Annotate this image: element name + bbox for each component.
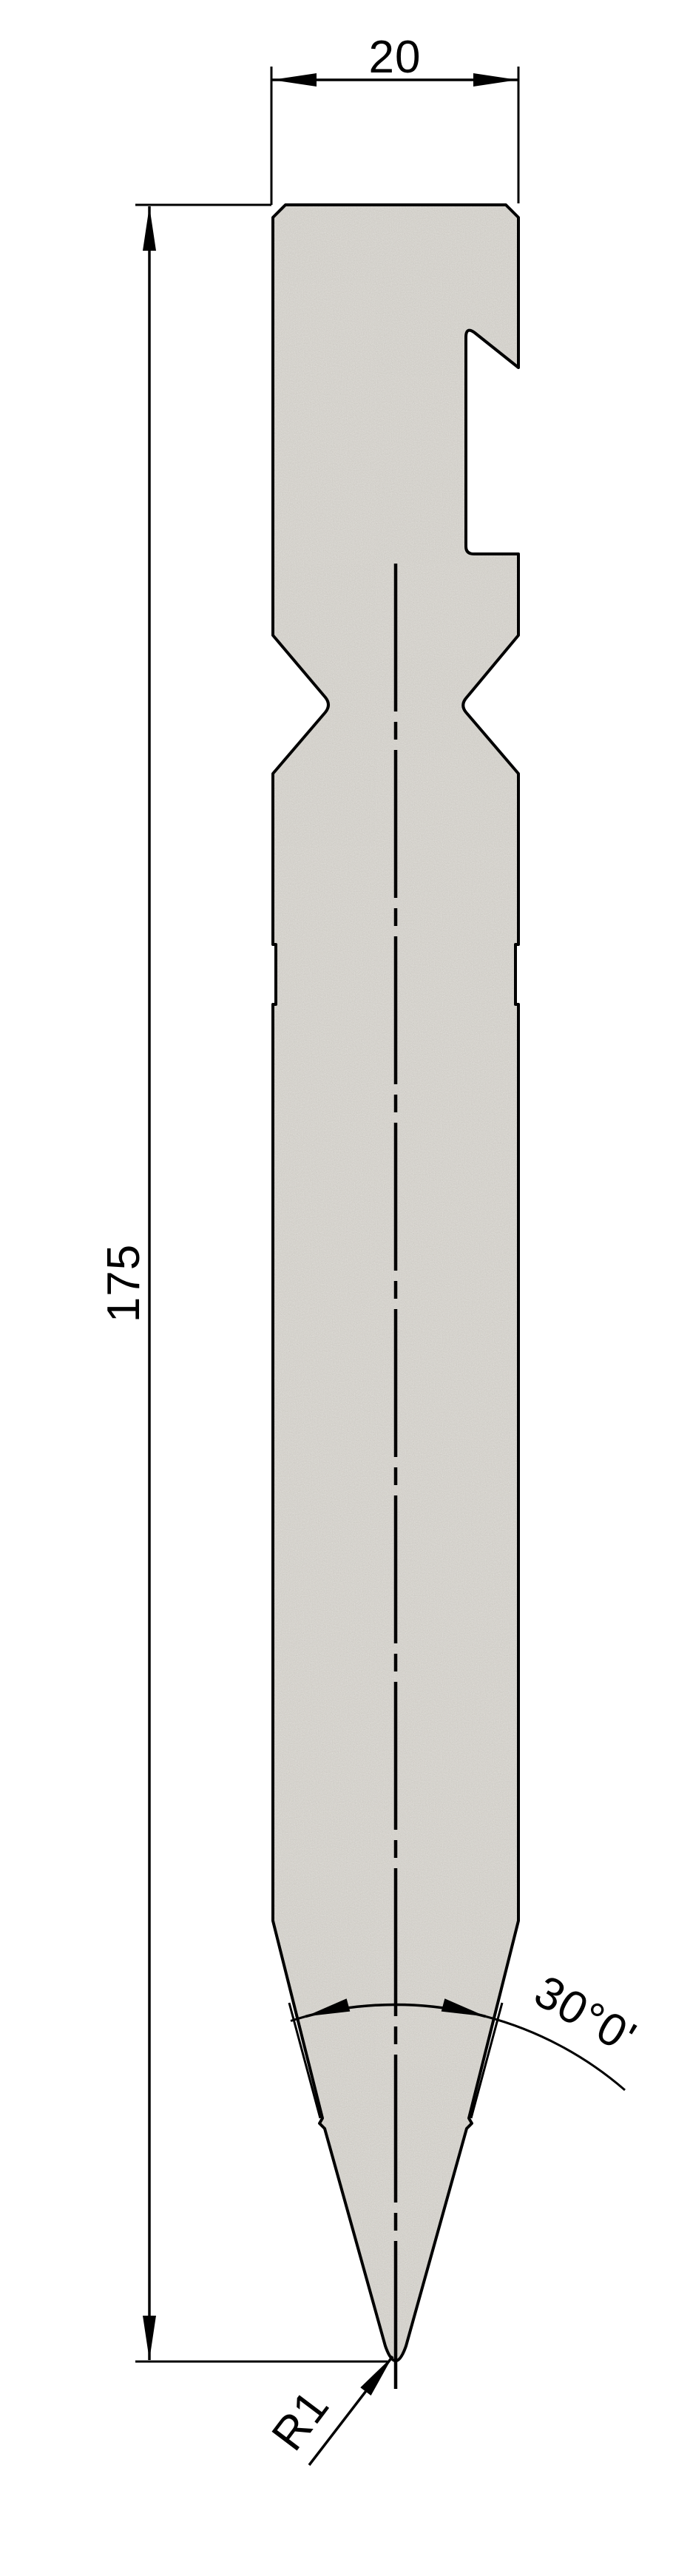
radius-dimension-label: R1 [263, 2381, 339, 2459]
width-dimension-label: 20 [369, 32, 422, 83]
width-dimension: 20 [271, 32, 518, 205]
technical-drawing-canvas: 20 175 30°0' R1 [0, 0, 690, 2576]
height-dimension-label: 175 [98, 1244, 149, 1322]
radius-dimension: R1 [263, 2356, 393, 2465]
punch-profile-drawing: 20 175 30°0' R1 [0, 0, 690, 2576]
angle-dimension-label: 30°0' [526, 1966, 644, 2063]
